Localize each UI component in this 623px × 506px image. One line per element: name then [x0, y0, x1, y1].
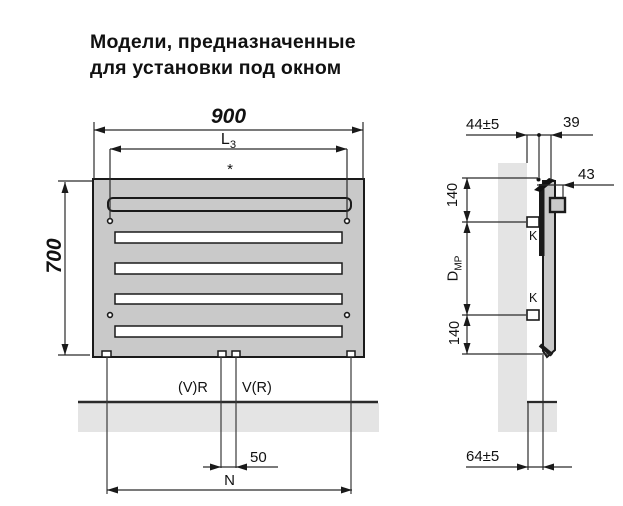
dim-44-label: 44±5 [466, 116, 499, 133]
slot-4 [115, 326, 342, 337]
arrow-dmp-up [464, 222, 471, 233]
plate-back-strip [539, 184, 545, 256]
arrow-700-bottom [62, 344, 69, 355]
dim-l3-label: L3 [110, 131, 347, 151]
arrow-140bot-up [464, 315, 471, 326]
dim-43-label: 43 [578, 166, 595, 183]
notch-right [347, 351, 355, 357]
mount-hole-top-left [108, 219, 113, 224]
connector-block [550, 198, 565, 212]
page-title-line1: Модели, предназначенные [90, 29, 356, 55]
arrow-43 [563, 182, 574, 189]
valve-left-label: (V)R [178, 380, 208, 396]
top-collector-bar [108, 198, 351, 211]
k-connector-bottom [527, 310, 539, 320]
dim-top-chain-lines [466, 135, 593, 180]
dim-50-label: 50 [250, 449, 267, 466]
arrow-dmp-down [464, 304, 471, 315]
arrow-700-top [62, 182, 69, 193]
mount-hole-bottom-left [108, 313, 113, 318]
dim-chain-dot [537, 133, 541, 137]
valve-right-label: V(R) [242, 380, 272, 396]
arrow-140top-up [464, 178, 471, 189]
floor-side-view [527, 403, 557, 432]
page-title-line2: для установки под окном [90, 55, 356, 81]
dim-n-label: N [107, 472, 352, 489]
dim-140-bottom-label: 140 [447, 303, 463, 363]
arrow-44-right [516, 132, 527, 139]
notch-left [102, 351, 111, 357]
dim-900-label: 900 [94, 105, 363, 129]
k-connector-top [527, 217, 539, 227]
slot-3 [115, 294, 342, 304]
arrow-140bot-down [464, 343, 471, 354]
wall-side-view [498, 163, 527, 432]
dim-39-label: 39 [563, 114, 580, 131]
slot-1 [115, 232, 342, 243]
arrow-39-left [551, 132, 562, 139]
arrow-140top-down [464, 211, 471, 222]
arrow-50-left [210, 464, 221, 471]
page-title: Модели, предназначенные для установки по… [90, 29, 356, 81]
arrow-64-left [517, 464, 528, 471]
notch-center-left [218, 351, 226, 357]
dim-140-top-label: 140 [445, 165, 461, 225]
technical-drawing-page: Модели, предназначенные для установки по… [0, 0, 623, 506]
arrow-64-right [543, 464, 554, 471]
mount-hole-top-right [345, 219, 350, 224]
asterisk-note: * [210, 161, 250, 178]
dim-dmp-label: DМР [446, 238, 465, 298]
mount-hole-bottom-right [345, 313, 350, 318]
floor-front-view [78, 403, 379, 432]
notch-center-right [232, 351, 240, 357]
arrow-50-right [236, 464, 247, 471]
k-top-label: K [529, 229, 537, 243]
slot-2 [115, 263, 342, 274]
k-bottom-label: K [529, 291, 537, 305]
dim-64-label: 64±5 [466, 448, 499, 465]
dim-700-label: 700 [43, 226, 67, 286]
